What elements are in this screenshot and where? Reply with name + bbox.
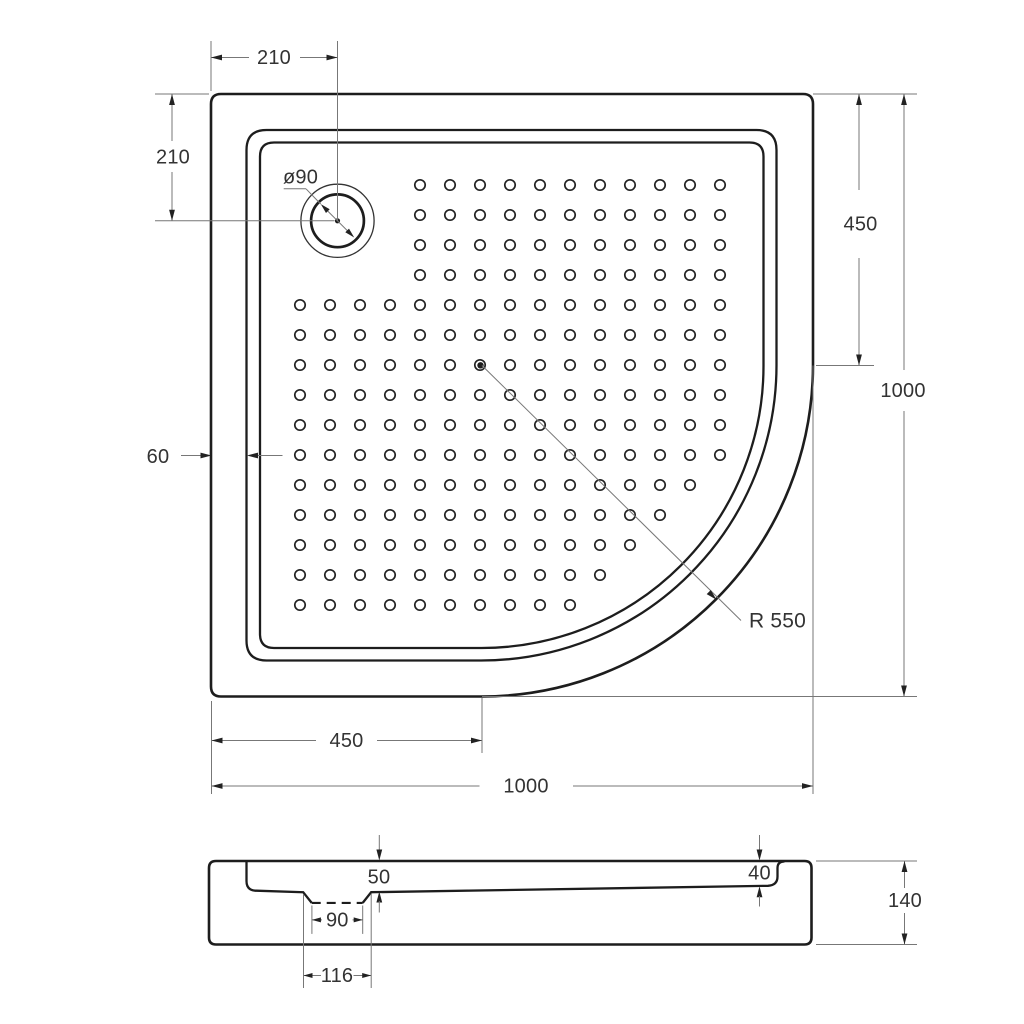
svg-text:90: 90 [326, 910, 349, 932]
svg-text:210: 210 [257, 47, 291, 69]
svg-text:450: 450 [844, 214, 878, 236]
svg-text:ø90: ø90 [283, 167, 318, 189]
svg-text:R 550: R 550 [749, 610, 806, 633]
svg-text:140: 140 [888, 890, 922, 912]
svg-text:40: 40 [748, 863, 771, 885]
svg-text:1000: 1000 [880, 380, 925, 402]
svg-text:210: 210 [156, 147, 190, 169]
svg-text:50: 50 [368, 867, 391, 889]
svg-text:450: 450 [330, 730, 364, 752]
svg-text:60: 60 [147, 446, 170, 468]
svg-text:116: 116 [321, 965, 354, 987]
svg-text:1000: 1000 [503, 776, 548, 798]
